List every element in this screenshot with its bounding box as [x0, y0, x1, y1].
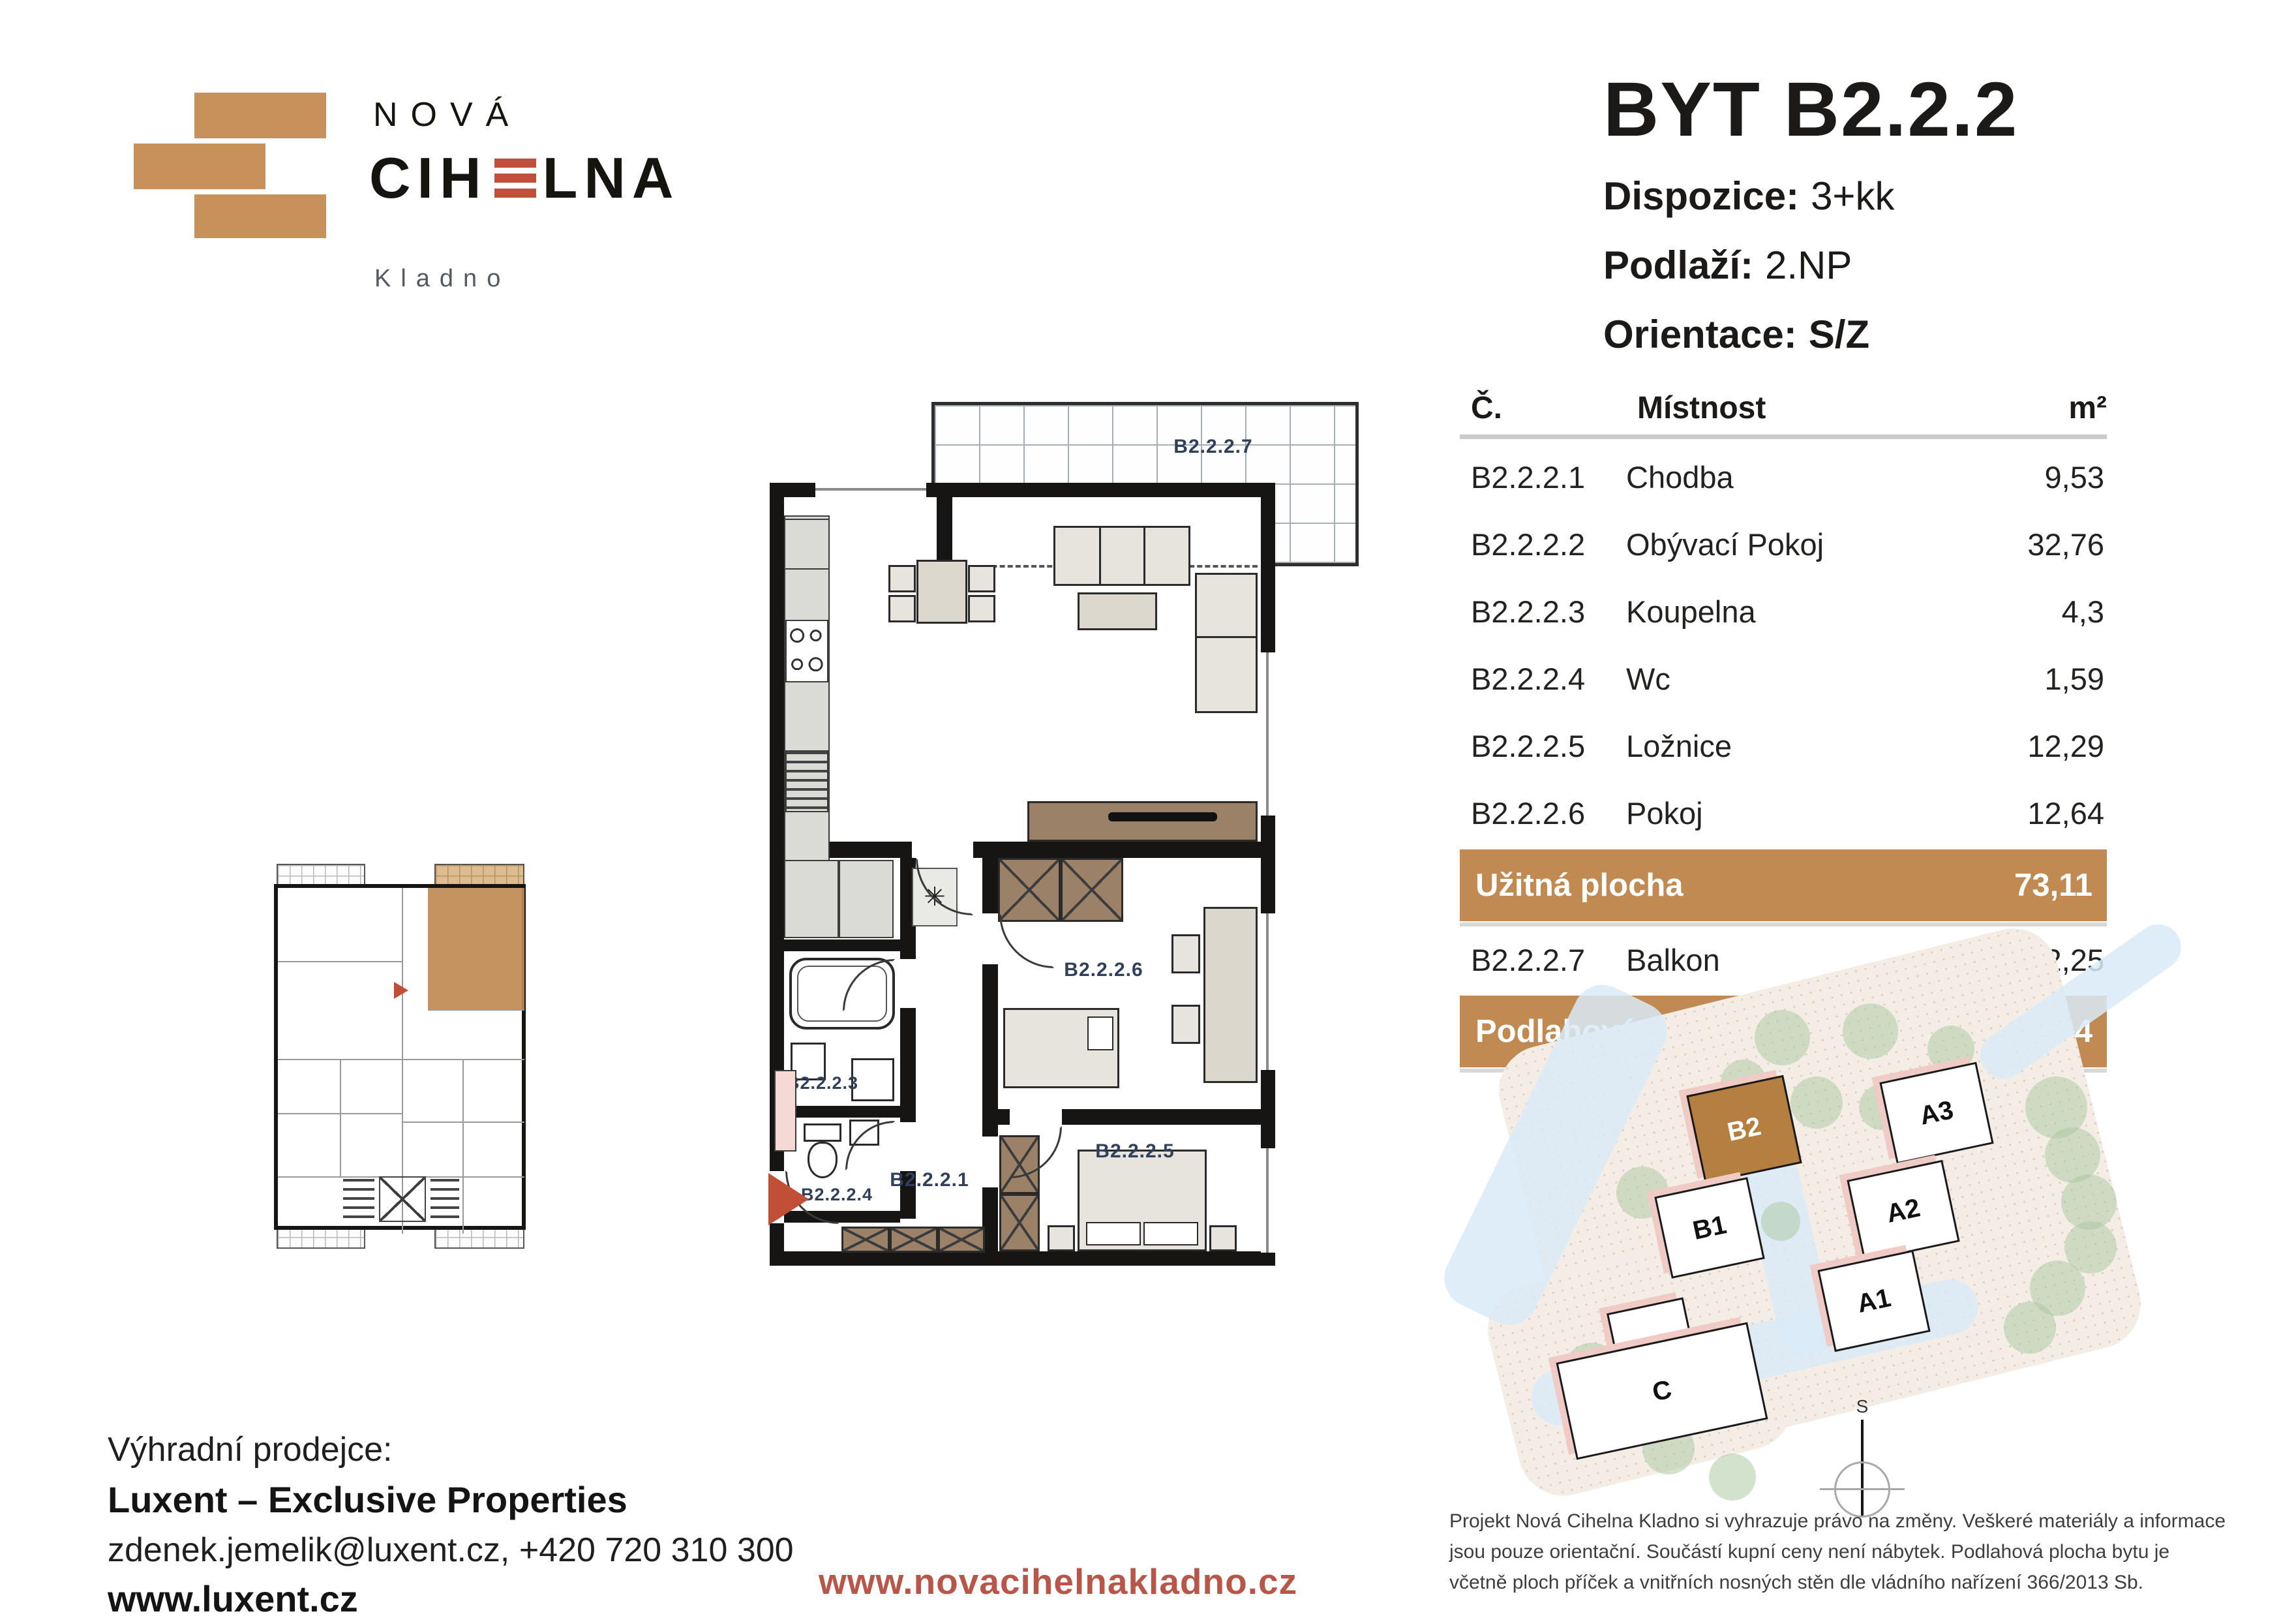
- plan-label-room: B2.2.2.6: [1051, 959, 1156, 981]
- furniture-coffee-table: [1078, 592, 1157, 630]
- seller-web-link: www.luxent.cz: [108, 1578, 358, 1618]
- tree-icon: [1790, 1076, 1843, 1129]
- window: [1261, 1148, 1275, 1253]
- mini-unit-highlight: [428, 888, 524, 1009]
- mini-stairs: [430, 1179, 459, 1219]
- tree-icon: [1843, 1003, 1898, 1059]
- hall-wardrobe: [841, 1227, 890, 1253]
- logo-name-main: CIHLNA: [369, 145, 680, 211]
- row-room: Obývací Pokoj: [1626, 527, 1970, 562]
- single-bed: [1003, 1008, 1119, 1088]
- spec-podlazi-label: Podlaží:: [1603, 243, 1753, 287]
- spec-dispozice: Dispozice:3+kk: [1603, 174, 1894, 219]
- row-room: Ložnice: [1626, 728, 1970, 764]
- sofa-cushion-line: [1143, 528, 1145, 584]
- wall-segment: [973, 842, 1261, 858]
- kitchen-corner-cabinet: [839, 860, 894, 938]
- window: [1261, 913, 1275, 1070]
- wall-segment: [937, 483, 952, 570]
- spec-dispozice-label: Dispozice:: [1603, 174, 1799, 218]
- logo-city: Kladno: [374, 265, 510, 293]
- row-area: 12,64: [1970, 795, 2107, 831]
- spec-orientace: Orientace:S/Z: [1603, 312, 1869, 357]
- wall-segment: [784, 939, 900, 951]
- mini-stairs: [343, 1179, 374, 1219]
- spec-orientace-label: Orientace:: [1603, 313, 1797, 356]
- desk: [1203, 907, 1258, 1083]
- spec-orientace-value: S/Z: [1809, 313, 1869, 356]
- logo-e-bars-icon: [494, 155, 536, 201]
- table-row: B2.2.2.5Ložnice12,29: [1460, 712, 2107, 780]
- wall-segment: [982, 858, 998, 913]
- disclaimer-text: Projekt Nová Cihelna Kladno si vyhrazuje…: [1449, 1506, 2232, 1598]
- mini-elevator-x: [380, 1178, 425, 1221]
- logo-name-top: NOVÁ: [373, 95, 521, 134]
- furniture-chair: [968, 595, 995, 622]
- furniture-sofa: [1053, 526, 1190, 586]
- furniture-chair: [888, 595, 916, 622]
- tall-wardrobe: [999, 1194, 1040, 1251]
- row-no: B2.2.2.4: [1460, 661, 1626, 697]
- wall-segment: [982, 964, 998, 1137]
- col-header-area: m²: [2022, 390, 2107, 426]
- summary-useful-area-bar: Užitná plocha 73,11: [1460, 849, 2107, 921]
- mini-entrance-arrow-icon: [394, 982, 408, 999]
- window: [815, 483, 926, 497]
- row-area: 12,29: [1970, 728, 2107, 764]
- mini-wall: [278, 961, 402, 962]
- nightstand: [1048, 1225, 1075, 1251]
- mini-wall: [278, 1059, 524, 1060]
- desk-chair: [1171, 934, 1200, 973]
- row-area: 9,53: [1970, 459, 2107, 495]
- mini-wall: [462, 1059, 464, 1234]
- mini-wall: [428, 1009, 524, 1011]
- table-row: B2.2.2.1Chodba9,53: [1460, 444, 2107, 511]
- kitchen-cabinet: [784, 519, 830, 570]
- plan-label-balcony: B2.2.2.7: [1158, 436, 1269, 458]
- hall-wardrobe: [890, 1227, 938, 1253]
- compass-north-label: S: [1820, 1396, 1905, 1417]
- row-room: Wc: [1626, 661, 1970, 697]
- window: [1261, 652, 1275, 816]
- pillow: [1143, 1222, 1198, 1245]
- logo-brick-top: [194, 93, 326, 138]
- logo-name-main-pre: CIH: [369, 145, 488, 211]
- summary-useful-value: 73,11: [2014, 867, 2092, 904]
- row-no: B2.2.2.1: [1460, 459, 1626, 495]
- spec-dispozice-value: 3+kk: [1811, 174, 1894, 218]
- row-no: B2.2.2.6: [1460, 795, 1626, 831]
- seller-intro: Výhradní prodejce:: [108, 1430, 393, 1469]
- nightstand: [1209, 1225, 1237, 1251]
- col-header-number: Č.: [1471, 390, 1502, 426]
- row-room: Koupelna: [1626, 594, 1970, 630]
- table-row: B2.2.2.3Koupelna4,3: [1460, 578, 2107, 645]
- tree-icon: [1755, 1010, 1810, 1065]
- row-no: B2.2.2.2: [1460, 527, 1626, 562]
- compass-crosshair: [1820, 1488, 1905, 1490]
- table-row: B2.2.2.2Obývací Pokoj32,76: [1460, 511, 2107, 578]
- wall-segment: [900, 1008, 916, 1122]
- logo-brick-bottom: [194, 194, 326, 238]
- spec-podlazi: Podlaží:2.NP: [1603, 243, 1852, 288]
- logo-brick-middle: [134, 144, 265, 189]
- plan-label-bedroom: B2.2.2.5: [1080, 1140, 1190, 1163]
- furniture-chair: [888, 565, 916, 592]
- row-no: B2.2.2.5: [1460, 728, 1626, 764]
- kitchen-dishwasher: [785, 750, 828, 812]
- sofa-cushion-line: [1099, 528, 1101, 584]
- mini-building-plan: [274, 884, 526, 1230]
- tree-icon: [1761, 1202, 1800, 1241]
- project-web-link: www.novacihelnakladno.cz: [819, 1561, 1297, 1602]
- tree-icon: [2004, 1302, 2056, 1354]
- row-no: B2.2.2.7: [1460, 942, 1626, 978]
- desk-chair: [1171, 1005, 1200, 1044]
- summary-useful-label: Užitná plocha: [1475, 867, 1684, 904]
- mini-wall: [340, 1059, 341, 1176]
- wardrobe: [1061, 858, 1123, 922]
- kitchen-counter: [784, 515, 830, 878]
- table-header-rule: [1460, 435, 2107, 439]
- row-area: 1,59: [1970, 661, 2107, 697]
- seller-name: Luxent – Exclusive Properties: [108, 1478, 627, 1521]
- entrance-arrow-icon: [768, 1173, 809, 1225]
- row-area: 32,76: [1970, 527, 2107, 562]
- toilet-tank: [804, 1123, 841, 1142]
- col-header-room: Místnost: [1637, 390, 1766, 426]
- kitchen-corner-cabinet: [784, 860, 839, 938]
- row-room: Chodba: [1626, 459, 1970, 495]
- mini-elevator: [379, 1176, 426, 1222]
- kitchen-hob: [785, 620, 828, 682]
- pillow: [1087, 1016, 1113, 1050]
- furniture-tv-sideboard: [1027, 801, 1258, 842]
- seller-contact: zdenek.jemelik@luxent.cz, +420 720 310 3…: [108, 1531, 794, 1570]
- page-title: BYT B2.2.2: [1603, 65, 2018, 154]
- furniture-dining-table: [916, 560, 967, 624]
- tree-icon: [1709, 1454, 1756, 1501]
- armchair-cushion-line: [1197, 636, 1256, 638]
- shaft: [774, 1070, 796, 1152]
- tv-icon: [1108, 812, 1217, 821]
- plan-label-bathroom: B2.2.2.3: [787, 1073, 884, 1093]
- furniture-armchair: [1195, 573, 1258, 713]
- table-row: B2.2.2.4Wc1,59: [1460, 645, 2107, 712]
- wardrobe: [998, 858, 1061, 922]
- row-no: B2.2.2.3: [1460, 594, 1626, 630]
- wall-segment: [784, 1106, 900, 1118]
- row-room: Pokoj: [1626, 795, 1970, 831]
- pillow: [1086, 1222, 1141, 1245]
- table-row: B2.2.2.6Pokoj12,64: [1460, 780, 2107, 847]
- wall-segment: [998, 1109, 1010, 1125]
- furniture-chair: [968, 565, 995, 592]
- hall-wardrobe: [938, 1227, 985, 1253]
- logo-name-main-post: LNA: [543, 145, 680, 211]
- double-bed: [1078, 1150, 1207, 1251]
- row-area: 4,3: [1970, 594, 2107, 630]
- plan-label-hallway: B2.2.2.1: [877, 1169, 982, 1191]
- spec-podlazi-value: 2.NP: [1765, 243, 1852, 287]
- wall-segment: [1062, 1109, 1261, 1125]
- page: NOVÁ CIHLNA Kladno BYT B2.2.2 Dispozice:…: [0, 0, 2296, 1618]
